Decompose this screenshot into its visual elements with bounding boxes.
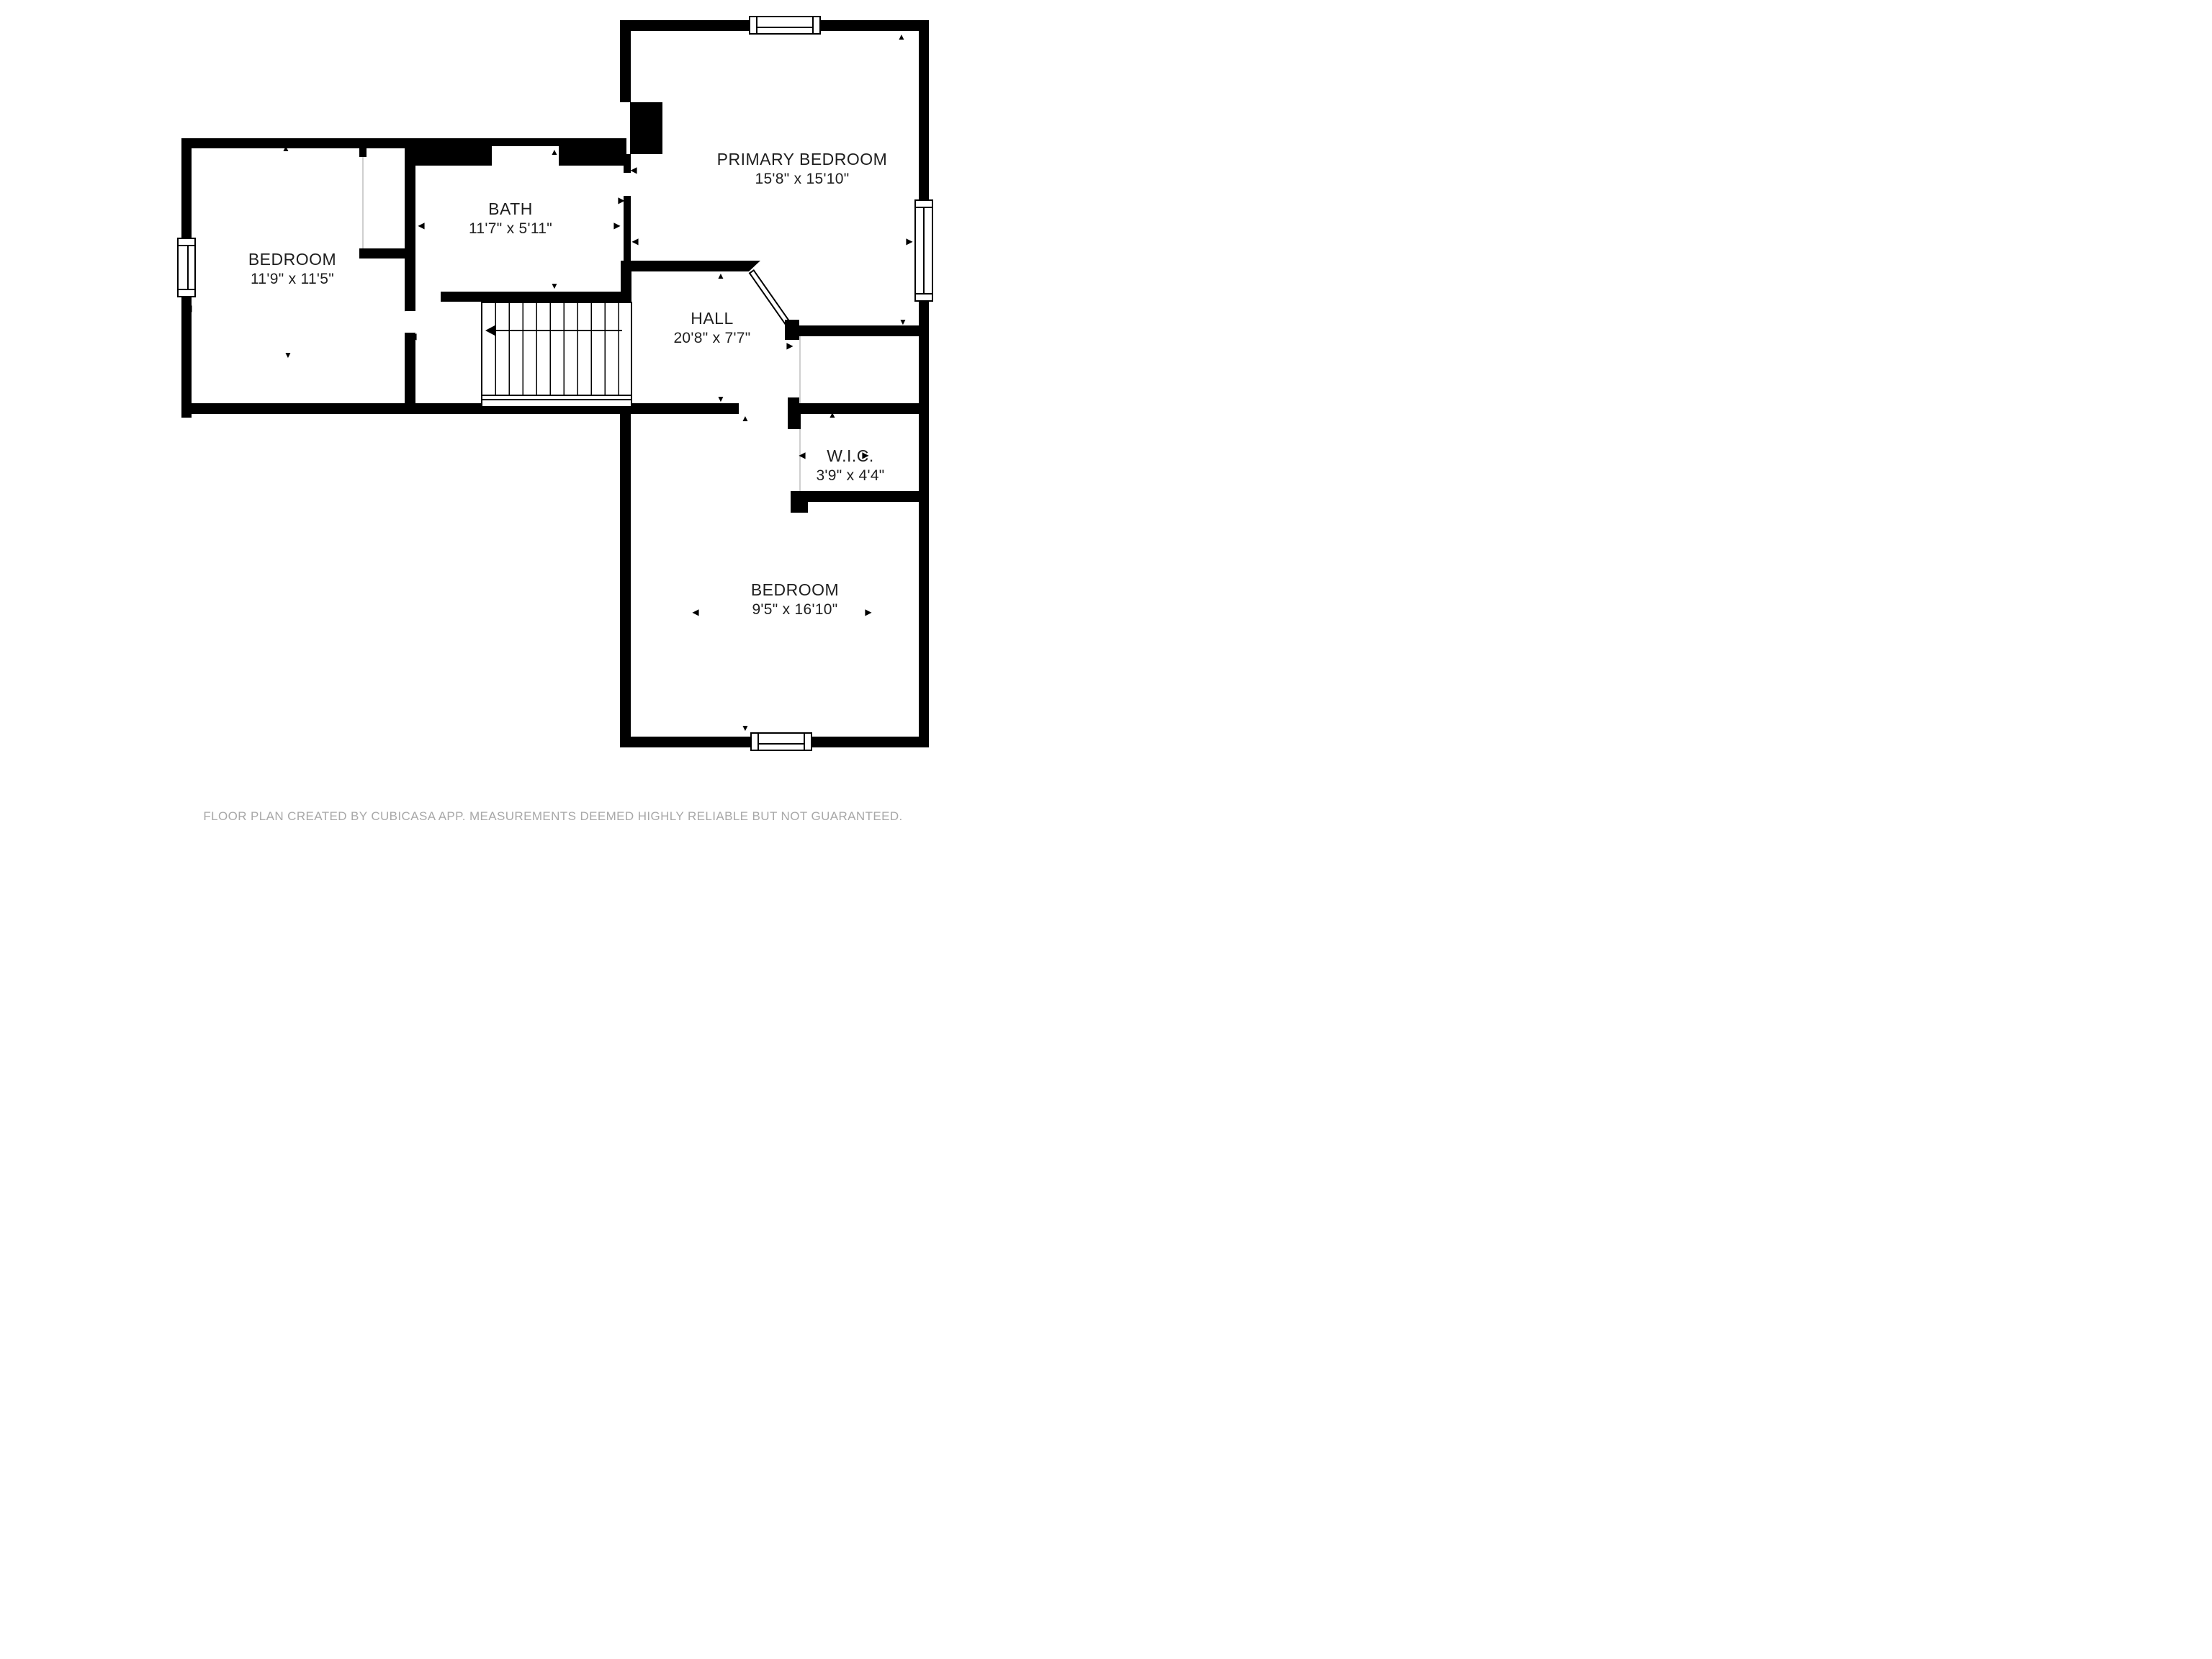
- room-name: PRIMARY BEDROOM: [717, 149, 888, 169]
- interior-wall-hall-top: [621, 261, 749, 271]
- window-frame-line: [812, 17, 814, 33]
- arrow-up-icon: ▲: [741, 414, 750, 423]
- arrow-right-icon: ▶: [862, 451, 868, 459]
- exterior-wall-left-right-block-lower: [620, 403, 631, 747]
- window-frame-line: [804, 734, 805, 750]
- arrow-up-icon: ▲: [828, 410, 837, 419]
- arrow-up-icon: ▲: [550, 148, 559, 156]
- interior-wall-primary-bottom: [795, 325, 919, 336]
- divider-line-hall-right: [799, 336, 801, 403]
- room-label-bedroom-bottom: BEDROOM 9'5" x 16'10": [751, 580, 839, 620]
- window-frame-line: [756, 17, 757, 33]
- arrow-down-icon: ▼: [828, 491, 837, 500]
- window-frame-line: [757, 734, 759, 750]
- stair-arrow-head-icon: [485, 325, 496, 336]
- window-glass-line: [757, 27, 813, 28]
- arrow-left-icon: ◀: [799, 451, 805, 459]
- exterior-wall-right: [919, 20, 929, 747]
- arrow-right-icon: ▶: [865, 608, 871, 616]
- arrow-down-icon: ▼: [741, 724, 750, 732]
- floor-plan: BEDROOM 11'9" x 11'5" BATH 11'7" x 5'11"…: [0, 0, 1106, 829]
- exterior-wall-top-bedroom: [181, 138, 410, 148]
- arrow-left-icon: ◀: [630, 166, 637, 174]
- arrow-right-icon: ▶: [405, 303, 411, 312]
- room-label-primary-bedroom: PRIMARY BEDROOM 15'8" x 15'10": [717, 149, 888, 189]
- room-dimensions: 11'7" x 5'11": [469, 219, 552, 239]
- stair-direction-arrow: [494, 330, 622, 331]
- window-glass-line: [187, 246, 189, 289]
- window-glass-line: [758, 743, 804, 745]
- arrow-right-icon: ▶: [786, 341, 793, 350]
- room-name: BATH: [469, 199, 552, 219]
- exterior-wall-left-right-block-upper: [620, 31, 631, 102]
- room-name: W.I.C.: [816, 446, 884, 466]
- stairs: [481, 302, 632, 408]
- room-name: HALL: [673, 308, 750, 328]
- arrow-down-icon: ▼: [550, 282, 559, 290]
- arrow-up-icon: ▲: [716, 271, 725, 280]
- window-symbol-primary-right: [914, 199, 933, 302]
- arrow-right-icon: ▶: [613, 221, 620, 230]
- room-label-bedroom-left: BEDROOM 11'9" x 11'5": [248, 249, 336, 289]
- interior-wall-wic-bottom: [791, 491, 919, 502]
- arrow-left-icon: ◀: [418, 221, 424, 230]
- window-frame-line: [179, 289, 194, 290]
- interior-wall-bedroom-right-upper: [405, 138, 415, 311]
- room-label-hall: HALL 20'8" x 7'7": [673, 308, 750, 349]
- window-symbol-bedroom-bottom: [750, 732, 812, 751]
- window-symbol-primary-top: [749, 16, 821, 35]
- arrow-up-icon: ▲: [897, 32, 906, 41]
- closet-stub-top: [359, 138, 367, 157]
- window-frame-line: [179, 245, 194, 246]
- window-glass-line: [923, 207, 925, 294]
- arrow-down-icon: ▼: [899, 318, 907, 326]
- room-dimensions: 9'5" x 16'10": [751, 600, 839, 620]
- room-dimensions: 3'9" x 4'4": [816, 466, 884, 486]
- room-dimensions: 11'9" x 11'5": [248, 269, 336, 289]
- room-label-wic: W.I.C. 3'9" x 4'4": [816, 446, 884, 486]
- closet-front-line: [362, 157, 364, 248]
- arrow-left-icon: ◀: [185, 304, 192, 313]
- room-name: BEDROOM: [248, 249, 336, 269]
- chimney: [630, 102, 662, 154]
- window-symbol-bedroom-left: [177, 238, 196, 297]
- angled-door: [749, 269, 791, 325]
- interior-wall-bath-primary-lower: [624, 196, 631, 261]
- stair-tread-lines: [482, 303, 631, 396]
- arrow-up-icon: ▲: [282, 144, 290, 153]
- wic-bottom-stub: [791, 491, 808, 513]
- arrow-right-icon: ▶: [906, 237, 912, 246]
- room-dimensions: 15'8" x 15'10": [717, 169, 888, 189]
- exterior-wall-bottom-left-block: [181, 403, 739, 414]
- interior-wall-bath-bottom: [441, 292, 631, 302]
- arrow-down-icon: ▼: [716, 395, 725, 403]
- arrow-down-icon: ▼: [284, 351, 292, 359]
- room-label-bath: BATH 11'7" x 5'11": [469, 199, 552, 239]
- arrow-right-icon: ▶: [618, 196, 624, 204]
- interior-wall-wic-top: [788, 403, 919, 414]
- arrow-left-icon: ◀: [410, 332, 416, 341]
- footer-disclaimer: FLOOR PLAN CREATED BY CUBICASA APP. MEAS…: [0, 809, 1106, 824]
- divider-line-wic-door: [799, 429, 801, 491]
- arrow-left-icon: ◀: [692, 608, 698, 616]
- arrow-left-icon: ◀: [631, 237, 638, 246]
- closet-wall-bottom: [359, 248, 415, 258]
- stair-landing-line: [482, 399, 631, 400]
- wall-recess: [492, 146, 559, 166]
- room-dimensions: 20'8" x 7'7": [673, 328, 750, 349]
- room-name: BEDROOM: [751, 580, 839, 600]
- interior-wall-bedroom-right-lower: [405, 333, 415, 414]
